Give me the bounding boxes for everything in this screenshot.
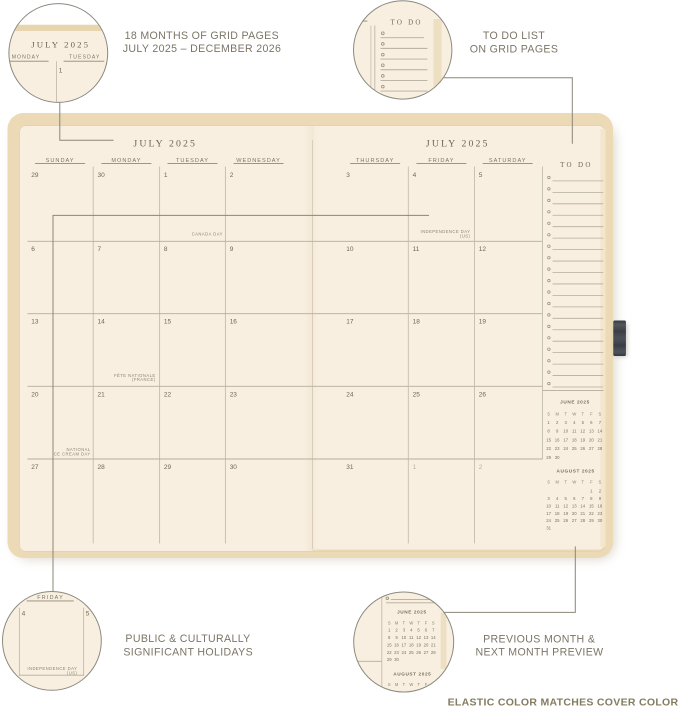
svg-text:27: 27	[424, 650, 429, 655]
svg-text:9: 9	[230, 246, 234, 253]
svg-text:22: 22	[589, 511, 594, 516]
svg-text:29: 29	[164, 464, 172, 471]
svg-text:11: 11	[409, 635, 414, 640]
svg-text:10: 10	[402, 635, 407, 640]
svg-text:24: 24	[402, 650, 407, 655]
svg-text:13: 13	[589, 429, 594, 434]
svg-text:18: 18	[409, 642, 414, 647]
svg-text:16: 16	[230, 318, 238, 325]
svg-text:13: 13	[424, 635, 429, 640]
svg-text:16: 16	[598, 503, 603, 508]
svg-text:15: 15	[546, 437, 551, 442]
svg-text:23: 23	[230, 391, 238, 398]
svg-text:17: 17	[563, 437, 568, 442]
svg-text:1: 1	[413, 464, 417, 471]
svg-text:JULY 2025: JULY 2025	[426, 138, 490, 149]
svg-text:30: 30	[98, 172, 106, 179]
svg-text:27: 27	[572, 518, 577, 523]
svg-text:29: 29	[387, 657, 392, 662]
svg-text:AUGUST 2025: AUGUST 2025	[557, 468, 595, 473]
svg-text:JULY 2025: JULY 2025	[31, 39, 90, 49]
svg-text:30: 30	[598, 518, 603, 523]
svg-text:4: 4	[22, 611, 26, 618]
svg-text:21: 21	[431, 642, 436, 647]
svg-text:29: 29	[546, 455, 551, 460]
svg-text:24: 24	[546, 518, 551, 523]
svg-text:CANADA DAY: CANADA DAY	[192, 232, 223, 237]
svg-text:12: 12	[563, 503, 568, 508]
svg-text:4: 4	[413, 172, 417, 179]
svg-text:10: 10	[563, 429, 568, 434]
svg-text:25: 25	[572, 446, 577, 451]
svg-text:M: M	[555, 479, 559, 484]
svg-text:M: M	[555, 411, 559, 416]
svg-text:7: 7	[98, 246, 102, 253]
svg-text:21: 21	[598, 437, 603, 442]
svg-text:27: 27	[31, 464, 39, 471]
svg-text:JUNE 2025: JUNE 2025	[560, 399, 590, 404]
svg-text:5: 5	[86, 611, 90, 618]
svg-text:20: 20	[572, 511, 577, 516]
svg-text:16: 16	[394, 642, 399, 647]
svg-text:TO DO LIST: TO DO LIST	[483, 30, 545, 42]
svg-text:19: 19	[479, 318, 487, 325]
svg-text:22: 22	[546, 446, 551, 451]
svg-text:(US): (US)	[460, 233, 471, 238]
svg-text:29: 29	[31, 172, 39, 179]
svg-text:S: S	[388, 621, 391, 626]
svg-text:24: 24	[563, 446, 568, 451]
svg-text:NEXT MONTH PREVIEW: NEXT MONTH PREVIEW	[476, 646, 604, 658]
svg-text:18: 18	[555, 511, 560, 516]
svg-text:23: 23	[555, 446, 560, 451]
svg-text:15: 15	[589, 503, 594, 508]
svg-text:1: 1	[164, 172, 168, 179]
svg-text:10: 10	[546, 503, 551, 508]
svg-text:M: M	[395, 621, 399, 626]
svg-text:19: 19	[580, 437, 585, 442]
svg-text:11: 11	[572, 429, 577, 434]
svg-text:30: 30	[230, 464, 238, 471]
svg-text:M: M	[395, 682, 399, 687]
svg-text:3: 3	[346, 172, 350, 179]
svg-text:27: 27	[589, 446, 594, 451]
svg-text:15: 15	[164, 318, 172, 325]
svg-text:18 MONTHS OF GRID PAGES: 18 MONTHS OF GRID PAGES	[125, 30, 279, 42]
svg-text:21: 21	[580, 511, 585, 516]
svg-text:S: S	[599, 411, 602, 416]
svg-text:(FRANCE): (FRANCE)	[132, 377, 156, 382]
svg-text:TO DO: TO DO	[391, 18, 423, 26]
svg-text:S: S	[388, 682, 391, 687]
svg-text:17: 17	[402, 642, 407, 647]
svg-text:26: 26	[479, 391, 487, 398]
svg-text:23: 23	[394, 650, 399, 655]
svg-text:22: 22	[164, 391, 172, 398]
svg-text:S: S	[432, 621, 435, 626]
svg-text:MONDAY: MONDAY	[12, 55, 41, 61]
svg-text:20: 20	[31, 391, 39, 398]
svg-text:14: 14	[98, 318, 106, 325]
svg-text:1: 1	[59, 67, 63, 74]
svg-text:ELASTIC COLOR MATCHES COVER CO: ELASTIC COLOR MATCHES COVER COLOR	[448, 696, 679, 708]
svg-text:30: 30	[555, 455, 560, 460]
svg-text:PREVIOUS MONTH &: PREVIOUS MONTH &	[483, 633, 595, 645]
svg-text:31: 31	[546, 526, 551, 531]
svg-text:26: 26	[416, 650, 421, 655]
svg-text:AUGUST 2025: AUGUST 2025	[393, 672, 431, 677]
svg-text:17: 17	[546, 511, 551, 516]
svg-text:11: 11	[413, 246, 420, 253]
svg-text:W: W	[572, 479, 576, 484]
svg-text:26: 26	[563, 518, 568, 523]
svg-text:W: W	[409, 682, 413, 687]
svg-text:24: 24	[346, 391, 354, 398]
svg-text:25: 25	[413, 391, 421, 398]
svg-text:18: 18	[413, 318, 421, 325]
svg-text:12: 12	[416, 635, 421, 640]
svg-text:14: 14	[580, 503, 585, 508]
svg-text:14: 14	[598, 429, 603, 434]
svg-text:JULY 2025 – DECEMBER 2026: JULY 2025 – DECEMBER 2026	[123, 43, 282, 55]
svg-text:19: 19	[563, 511, 568, 516]
svg-text:JUNE 2025: JUNE 2025	[397, 610, 427, 615]
svg-text:2: 2	[479, 464, 483, 471]
svg-text:S: S	[547, 479, 550, 484]
svg-text:ON GRID PAGES: ON GRID PAGES	[470, 44, 559, 56]
svg-text:5: 5	[479, 172, 483, 179]
svg-text:11: 11	[555, 503, 560, 508]
svg-text:FRIDAY: FRIDAY	[37, 595, 64, 601]
svg-text:TUESDAY: TUESDAY	[69, 55, 100, 61]
svg-text:8: 8	[164, 246, 168, 253]
svg-text:PUBLIC & CULTURALLY: PUBLIC & CULTURALLY	[125, 633, 250, 645]
svg-text:25: 25	[555, 518, 560, 523]
svg-text:6: 6	[31, 246, 35, 253]
svg-text:W: W	[409, 621, 413, 626]
svg-text:16: 16	[555, 437, 560, 442]
svg-text:25: 25	[409, 650, 414, 655]
svg-text:12: 12	[479, 246, 487, 253]
svg-text:(US): (US)	[67, 671, 78, 676]
svg-text:28: 28	[580, 518, 585, 523]
svg-text:29: 29	[589, 518, 594, 523]
svg-text:14: 14	[431, 635, 436, 640]
svg-text:28: 28	[98, 464, 106, 471]
svg-text:2: 2	[230, 172, 234, 179]
svg-text:12: 12	[580, 429, 585, 434]
svg-text:23: 23	[598, 511, 603, 516]
svg-text:13: 13	[31, 318, 39, 325]
svg-text:17: 17	[346, 318, 354, 325]
svg-text:31: 31	[346, 464, 354, 471]
svg-text:20: 20	[589, 437, 594, 442]
svg-text:28: 28	[598, 446, 603, 451]
svg-text:JULY 2025: JULY 2025	[133, 138, 197, 149]
svg-text:ICE CREAM DAY: ICE CREAM DAY	[52, 452, 91, 457]
svg-text:15: 15	[387, 642, 392, 647]
svg-text:22: 22	[387, 650, 392, 655]
svg-text:21: 21	[98, 391, 106, 398]
svg-text:18: 18	[572, 437, 577, 442]
svg-text:S: S	[547, 411, 550, 416]
svg-text:TO DO: TO DO	[560, 161, 593, 169]
svg-text:28: 28	[431, 650, 436, 655]
svg-text:W: W	[572, 411, 576, 416]
svg-text:30: 30	[394, 657, 399, 662]
svg-text:SIGNIFICANT HOLIDAYS: SIGNIFICANT HOLIDAYS	[123, 647, 253, 659]
svg-text:S: S	[599, 479, 602, 484]
svg-text:19: 19	[416, 642, 421, 647]
svg-text:26: 26	[580, 446, 585, 451]
svg-text:20: 20	[424, 642, 429, 647]
svg-text:13: 13	[572, 503, 577, 508]
svg-text:10: 10	[346, 246, 354, 253]
